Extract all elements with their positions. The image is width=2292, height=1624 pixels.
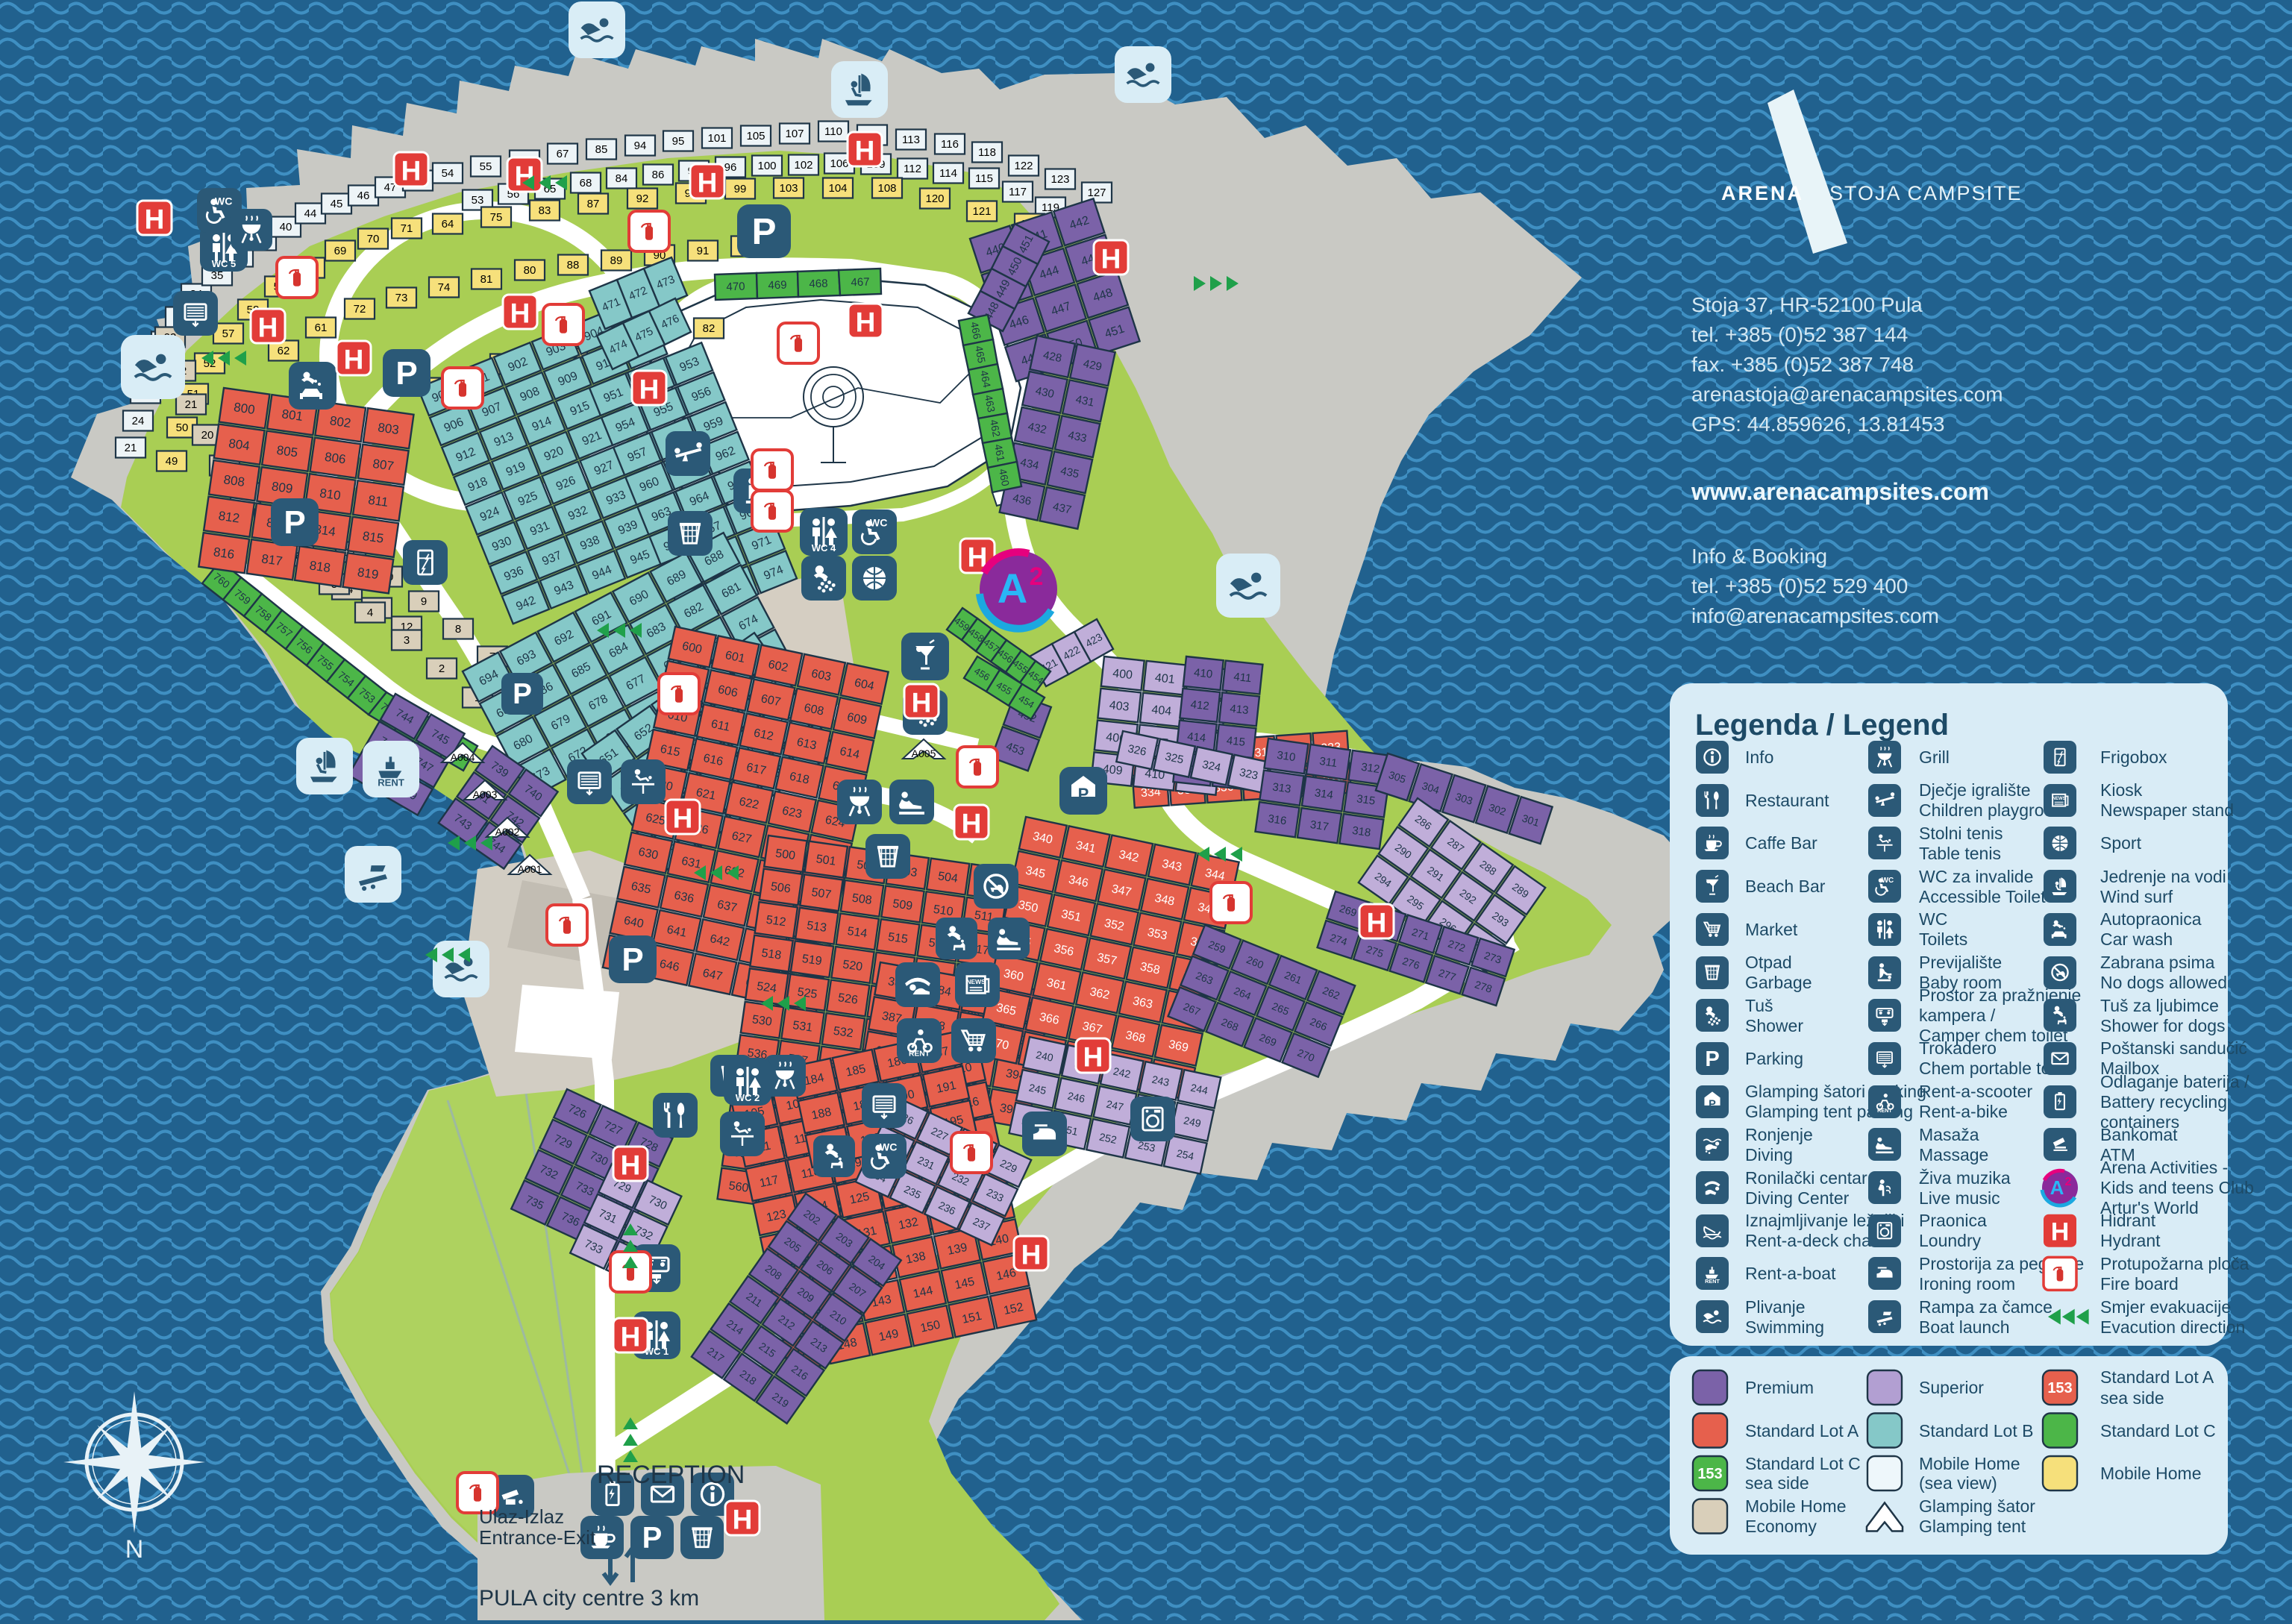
svg-text:118: 118: [978, 146, 996, 159]
svg-text:403: 403: [1109, 699, 1130, 714]
svg-text:H: H: [1083, 1042, 1103, 1073]
svg-text:H: H: [510, 298, 530, 329]
svg-text:H: H: [344, 345, 364, 375]
svg-text:113: 113: [902, 134, 920, 146]
svg-text:412: 412: [1190, 698, 1210, 713]
svg-text:Evacution direction: Evacution direction: [2100, 1317, 2245, 1337]
svg-text:H: H: [258, 313, 278, 343]
svg-text:Kiosk: Kiosk: [2100, 780, 2143, 800]
svg-text:Massage: Massage: [1919, 1145, 1988, 1164]
svg-text:Glamping tent: Glamping tent: [1919, 1517, 2026, 1536]
svg-text:84: 84: [616, 172, 628, 185]
svg-text:3: 3: [404, 634, 410, 647]
svg-text:Dječje igralište: Dječje igralište: [1919, 780, 2031, 800]
svg-text:H: H: [698, 168, 718, 198]
svg-text:40: 40: [280, 221, 292, 233]
svg-text:470: 470: [726, 280, 745, 294]
svg-text:153: 153: [2047, 1380, 2072, 1396]
svg-text:Otpad: Otpad: [1745, 953, 1792, 972]
svg-text:Fire board: Fire board: [2100, 1274, 2179, 1294]
svg-text:Battery recycling: Battery recycling: [2100, 1092, 2227, 1112]
svg-text:410: 410: [1193, 666, 1213, 681]
svg-text:Bankomat: Bankomat: [2100, 1125, 2178, 1144]
svg-text:A001: A001: [518, 863, 542, 875]
svg-text:69: 69: [334, 245, 347, 257]
svg-text:H: H: [855, 136, 875, 166]
svg-text:153: 153: [1697, 1466, 1722, 1482]
svg-text:99: 99: [734, 183, 747, 195]
svg-text:61: 61: [315, 322, 328, 334]
svg-text:Wind surf: Wind surf: [2100, 887, 2173, 906]
svg-text:Toilets: Toilets: [1919, 929, 1967, 949]
svg-text:Zabrana psima: Zabrana psima: [2100, 953, 2215, 972]
svg-text:P: P: [395, 355, 417, 392]
svg-text:105: 105: [746, 130, 765, 142]
svg-text:P: P: [642, 1522, 663, 1555]
svg-text:50: 50: [176, 421, 189, 434]
svg-text:Standard Lot A: Standard Lot A: [2100, 1367, 2214, 1387]
svg-text:fax. +385 (0)52 387 748: fax. +385 (0)52 387 748: [1691, 353, 1914, 376]
svg-text:62: 62: [278, 345, 290, 357]
svg-text:Loundry: Loundry: [1919, 1231, 1982, 1250]
svg-text:Swimming: Swimming: [1745, 1317, 1824, 1337]
svg-text:73: 73: [395, 292, 408, 304]
svg-text:H: H: [962, 809, 982, 839]
svg-text:NEWS: NEWS: [966, 978, 986, 985]
svg-text:74: 74: [438, 281, 451, 294]
svg-text:46: 46: [357, 189, 370, 202]
svg-text:804: 804: [228, 436, 251, 454]
svg-text:809: 809: [271, 479, 294, 496]
svg-text:H: H: [621, 1150, 641, 1181]
svg-text:810: 810: [319, 486, 342, 503]
svg-text:806: 806: [324, 450, 347, 467]
svg-text:811: 811: [367, 492, 389, 510]
svg-text:2: 2: [1030, 562, 1044, 591]
svg-text:Shower for dogs: Shower for dogs: [2100, 1016, 2225, 1035]
svg-text:info@arenacampsites.com: info@arenacampsites.com: [1691, 604, 1939, 627]
svg-text:Hidrant: Hidrant: [2100, 1211, 2156, 1230]
svg-text:9: 9: [421, 595, 427, 608]
svg-text:414: 414: [1186, 730, 1206, 745]
svg-text:53: 53: [472, 194, 484, 207]
svg-text:64: 64: [442, 218, 454, 231]
svg-text:Stolni tenis: Stolni tenis: [1919, 824, 2003, 843]
svg-text:H: H: [912, 688, 932, 718]
svg-text:49: 49: [166, 455, 178, 468]
svg-text:Protupožarna ploča: Protupožarna ploča: [2100, 1254, 2249, 1273]
svg-text:122: 122: [1014, 160, 1033, 172]
svg-text:94: 94: [634, 139, 647, 152]
svg-text:115: 115: [975, 172, 993, 185]
svg-text:127: 127: [1087, 186, 1106, 199]
svg-text:95: 95: [672, 135, 685, 148]
svg-text:Ronilački centar: Ronilački centar: [1745, 1168, 1867, 1188]
svg-text:Rent-a-deck chair: Rent-a-deck chair: [1745, 1231, 1881, 1250]
svg-text:85: 85: [595, 143, 608, 156]
svg-text:103: 103: [779, 182, 798, 195]
svg-text:80: 80: [524, 264, 536, 277]
svg-text:Tuš za ljubimce: Tuš za ljubimce: [2100, 996, 2219, 1015]
svg-text:Poštanski sandučić: Poštanski sandučić: [2100, 1038, 2247, 1058]
svg-text:108: 108: [877, 182, 896, 195]
svg-text:WC: WC: [1882, 877, 1894, 885]
svg-text:317: 317: [1309, 818, 1330, 833]
svg-text:Ulaz-Izlaz: Ulaz-Izlaz: [479, 1505, 564, 1528]
svg-text:Jedrenje na vodi: Jedrenje na vodi: [2100, 867, 2226, 886]
svg-text:Economy: Economy: [1745, 1517, 1817, 1536]
svg-text:82: 82: [703, 322, 716, 335]
svg-text:H: H: [639, 374, 660, 405]
svg-text:67: 67: [557, 148, 569, 160]
svg-text:tel. +385 (0)52 387 144: tel. +385 (0)52 387 144: [1691, 323, 1908, 346]
svg-text:Ronjenje: Ronjenje: [1745, 1125, 1813, 1144]
svg-text:WC: WC: [215, 195, 232, 207]
svg-text:816: 816: [213, 545, 236, 562]
svg-text:P: P: [1709, 1099, 1716, 1111]
svg-text:Restaurant: Restaurant: [1745, 791, 1829, 810]
svg-text:Odlaganje baterija /: Odlaganje baterija /: [2100, 1072, 2249, 1091]
svg-text:Garbage: Garbage: [1745, 973, 1812, 992]
svg-text:70: 70: [367, 233, 380, 245]
svg-text:WC 5: WC 5: [212, 258, 237, 269]
svg-text:Diving: Diving: [1745, 1145, 1793, 1164]
svg-text:P: P: [1078, 785, 1089, 803]
svg-text:sea side: sea side: [1745, 1473, 1809, 1493]
svg-text:Plivanje: Plivanje: [1745, 1297, 1806, 1317]
svg-text:Car wash: Car wash: [2100, 929, 2173, 949]
svg-text:315: 315: [1356, 792, 1376, 807]
svg-text:Diving Center: Diving Center: [1745, 1188, 1850, 1208]
svg-text:86: 86: [652, 169, 665, 181]
svg-text:Accessible Toilet: Accessible Toilet: [1919, 887, 2046, 906]
svg-text:Rent-a-bike: Rent-a-bike: [1919, 1102, 2008, 1121]
svg-text:101: 101: [707, 132, 726, 145]
svg-text:310: 310: [1276, 749, 1296, 764]
svg-text:45: 45: [331, 198, 343, 210]
svg-text:NEWS: NEWS: [2053, 797, 2066, 801]
svg-text:Parking: Parking: [1745, 1049, 1803, 1068]
svg-text:2: 2: [439, 662, 445, 675]
svg-text:P: P: [513, 678, 532, 710]
svg-text:Caffe Bar: Caffe Bar: [1745, 833, 1817, 853]
svg-text:Mobile Home: Mobile Home: [1919, 1454, 2020, 1473]
svg-text:Legenda / Legend: Legenda / Legend: [1695, 709, 1949, 742]
svg-text:A003: A003: [473, 789, 498, 800]
svg-text:P: P: [1705, 1047, 1719, 1071]
svg-text:Beach Bar: Beach Bar: [1745, 877, 1826, 896]
svg-text:RECEPTION: RECEPTION: [597, 1461, 745, 1489]
svg-text:805: 805: [276, 443, 299, 460]
svg-text:arenastoja@arenacampsites.com: arenastoja@arenacampsites.com: [1691, 383, 2003, 406]
svg-text:A002: A002: [495, 826, 520, 838]
svg-text:A005: A005: [912, 747, 936, 759]
svg-text:91: 91: [697, 245, 710, 257]
svg-text:kampera /: kampera /: [1919, 1006, 1996, 1025]
svg-text:123: 123: [1050, 173, 1069, 186]
svg-text:106: 106: [830, 157, 848, 170]
svg-text:H: H: [733, 1505, 753, 1535]
svg-text:Sport: Sport: [2100, 833, 2142, 853]
svg-text:818: 818: [309, 558, 332, 575]
svg-text:92: 92: [636, 192, 649, 205]
svg-text:A: A: [998, 565, 1027, 612]
svg-text:WC: WC: [880, 1141, 897, 1153]
svg-text:467: 467: [851, 276, 870, 289]
svg-text:819: 819: [357, 565, 380, 582]
svg-text:Frigobox: Frigobox: [2100, 747, 2167, 767]
svg-text:A: A: [2050, 1176, 2064, 1199]
svg-text:P: P: [621, 941, 643, 978]
svg-text:2: 2: [2065, 1176, 2072, 1188]
svg-text:No dogs allowed: No dogs allowed: [2100, 973, 2227, 992]
svg-text:20: 20: [201, 429, 214, 442]
svg-text:H: H: [673, 803, 693, 834]
svg-text:55: 55: [480, 160, 492, 173]
svg-text:808: 808: [222, 472, 245, 489]
svg-text:GPS: 44.859626, 13.81453: GPS: 44.859626, 13.81453: [1691, 413, 1944, 436]
svg-text:54: 54: [442, 167, 454, 180]
svg-text:807: 807: [372, 457, 395, 474]
svg-text:Superior: Superior: [1919, 1378, 1984, 1397]
svg-text:Stoja 37, HR-52100 Pula: Stoja 37, HR-52100 Pula: [1691, 293, 1923, 316]
svg-text:81: 81: [480, 273, 493, 286]
svg-text:H: H: [621, 1322, 641, 1352]
svg-text:314: 314: [1314, 786, 1334, 801]
svg-text:H: H: [401, 156, 422, 186]
svg-text:57: 57: [222, 327, 235, 340]
svg-text:313: 313: [1271, 780, 1291, 795]
svg-text:415: 415: [1226, 734, 1246, 749]
svg-text:Standard Lot A: Standard Lot A: [1745, 1421, 1859, 1440]
svg-text:24: 24: [132, 415, 145, 427]
svg-text:Živa muzika: Živa muzika: [1919, 1168, 2011, 1188]
svg-text:WC: WC: [870, 516, 887, 528]
svg-text:Trokadero: Trokadero: [1919, 1038, 1997, 1058]
svg-text:RENT: RENT: [1705, 1278, 1720, 1285]
svg-text:RENT: RENT: [378, 777, 404, 789]
svg-text:Standard Lot C: Standard Lot C: [1745, 1454, 1861, 1473]
svg-text:ARENA: ARENA: [1721, 182, 1804, 204]
svg-text:Mobile Home: Mobile Home: [2100, 1464, 2202, 1483]
svg-text:Info & Booking: Info & Booking: [1691, 545, 1827, 568]
svg-text:68: 68: [580, 177, 592, 189]
svg-text:Hydrant: Hydrant: [2100, 1231, 2161, 1250]
svg-text:WC za invalide: WC za invalide: [1919, 867, 2033, 886]
svg-text:Premium: Premium: [1745, 1378, 1814, 1397]
svg-text:102: 102: [794, 159, 812, 172]
svg-text:Ironing room: Ironing room: [1919, 1274, 2015, 1294]
svg-text:802: 802: [329, 413, 352, 430]
svg-text:Market: Market: [1745, 920, 1798, 939]
svg-text:117: 117: [1009, 186, 1027, 198]
svg-text:PULA city centre 3 km: PULA city centre 3 km: [479, 1586, 699, 1611]
svg-text:400: 400: [1112, 667, 1133, 682]
svg-text:120: 120: [925, 192, 944, 205]
svg-text:88: 88: [567, 259, 580, 272]
svg-text:Autopraonica: Autopraonica: [2100, 909, 2202, 929]
svg-text:H: H: [2051, 1218, 2070, 1247]
svg-text:311: 311: [1318, 755, 1338, 770]
svg-text:H: H: [145, 204, 165, 235]
svg-text:Table tenis: Table tenis: [1919, 844, 2001, 863]
svg-text:75: 75: [490, 211, 503, 224]
svg-text:Boat launch: Boat launch: [1919, 1317, 2009, 1337]
svg-text:www.arenacampsites.com: www.arenacampsites.com: [1691, 478, 1989, 505]
svg-text:318: 318: [1351, 824, 1371, 839]
svg-text:44: 44: [304, 207, 317, 220]
svg-text:Glamping šator: Glamping šator: [1919, 1496, 2035, 1516]
svg-text:N: N: [125, 1535, 144, 1564]
svg-text:tel. +385 (0)52 529 400: tel. +385 (0)52 529 400: [1691, 574, 1908, 598]
svg-text:WC 2: WC 2: [736, 1092, 760, 1103]
svg-text:71: 71: [401, 222, 413, 235]
svg-text:100: 100: [757, 160, 776, 172]
svg-text:P: P: [284, 504, 305, 541]
svg-text:83: 83: [539, 204, 551, 217]
svg-text:8: 8: [455, 623, 461, 636]
svg-text:114: 114: [939, 167, 957, 180]
svg-text:815: 815: [362, 529, 385, 546]
svg-text:H: H: [1367, 908, 1387, 938]
svg-text:803: 803: [377, 420, 400, 437]
svg-text:121: 121: [972, 205, 991, 218]
svg-text:312: 312: [1360, 761, 1380, 776]
svg-text:H: H: [856, 307, 876, 338]
svg-text:(sea view): (sea view): [1919, 1473, 1997, 1493]
svg-text:Mobile Home: Mobile Home: [1745, 1496, 1847, 1516]
svg-text:Masaža: Masaža: [1919, 1125, 1979, 1144]
svg-text:110: 110: [824, 125, 842, 138]
svg-text:Praonica: Praonica: [1919, 1211, 1987, 1230]
svg-text:401: 401: [1154, 671, 1175, 686]
svg-text:Previjalište: Previjalište: [1919, 953, 2002, 972]
svg-text:H: H: [1101, 244, 1121, 275]
svg-text:96: 96: [724, 161, 737, 174]
svg-text:Rent-a-boat: Rent-a-boat: [1745, 1264, 1836, 1283]
svg-text:21: 21: [125, 442, 137, 454]
svg-text:Tuš: Tuš: [1745, 996, 1773, 1015]
svg-text:sea side: sea side: [2100, 1388, 2164, 1408]
svg-text:Standard Lot B: Standard Lot B: [1919, 1421, 2033, 1440]
svg-text:4: 4: [367, 606, 373, 619]
svg-text:116: 116: [941, 138, 959, 151]
svg-text:Rent-a-scooter: Rent-a-scooter: [1919, 1082, 2032, 1101]
svg-text:RENT: RENT: [909, 1050, 930, 1059]
svg-text:812: 812: [218, 509, 241, 526]
svg-text:P: P: [752, 211, 777, 252]
svg-text:Smjer evakuacije: Smjer evakuacije: [2100, 1297, 2231, 1317]
svg-text:H: H: [1021, 1240, 1042, 1270]
svg-text:316: 316: [1267, 812, 1287, 827]
svg-text:STOJA CAMPSITE: STOJA CAMPSITE: [1829, 182, 2023, 204]
svg-text:468: 468: [809, 278, 828, 291]
svg-text:Standard Lot C: Standard Lot C: [2100, 1421, 2216, 1440]
svg-text:Entrance-Exit: Entrance-Exit: [479, 1526, 596, 1549]
svg-text:21: 21: [185, 398, 198, 411]
svg-text:107: 107: [785, 128, 804, 140]
svg-text:Grill: Grill: [1919, 747, 1950, 767]
svg-text:817: 817: [260, 551, 284, 568]
svg-text:WC: WC: [1919, 909, 1947, 929]
svg-text:A004: A004: [451, 751, 475, 763]
svg-text:Shower: Shower: [1745, 1016, 1803, 1035]
svg-text:411: 411: [1233, 671, 1253, 685]
svg-text:WC 4: WC 4: [812, 542, 836, 554]
svg-text:469: 469: [768, 279, 787, 292]
svg-text:Kids and teens Club: Kids and teens Club: [2100, 1178, 2254, 1197]
svg-text:104: 104: [828, 182, 847, 195]
svg-text:72: 72: [354, 303, 366, 316]
svg-text:Info: Info: [1745, 747, 1773, 767]
svg-text:404: 404: [1151, 703, 1172, 718]
svg-text:Live music: Live music: [1919, 1188, 2000, 1208]
svg-text:Newspaper stand: Newspaper stand: [2100, 800, 2234, 820]
svg-text:89: 89: [610, 254, 623, 267]
svg-text:800: 800: [233, 400, 256, 417]
svg-text:87: 87: [587, 198, 600, 210]
svg-text:RENT: RENT: [1877, 1107, 1892, 1114]
svg-text:Arena Activities -: Arena Activities -: [2100, 1158, 2228, 1177]
svg-text:112: 112: [904, 163, 921, 175]
svg-text:413: 413: [1230, 703, 1250, 718]
svg-text:Rampa za čamce: Rampa za čamce: [1919, 1297, 2053, 1317]
